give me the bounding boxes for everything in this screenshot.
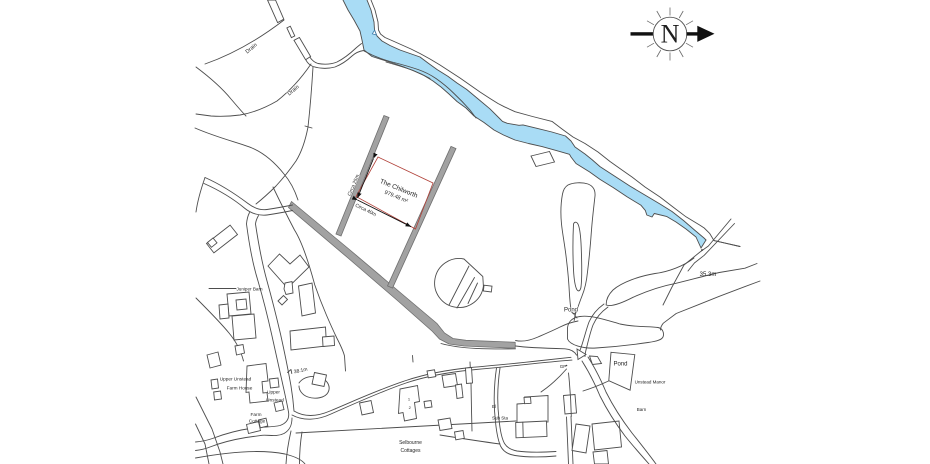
svg-text:Upper: Upper xyxy=(267,390,280,395)
svg-text:N: N xyxy=(661,20,680,49)
svg-text:Sub Sta: Sub Sta xyxy=(492,416,509,421)
svg-text:Pond: Pond xyxy=(564,308,578,314)
svg-text:Cottages: Cottages xyxy=(400,448,421,454)
svg-text:Juniper Barn: Juniper Barn xyxy=(237,287,263,292)
svg-text:Farm House: Farm House xyxy=(227,386,253,391)
svg-text:Unstead Manor: Unstead Manor xyxy=(635,380,666,385)
svg-text:35.3m: 35.3m xyxy=(700,272,717,278)
svg-text:Barn: Barn xyxy=(637,407,647,412)
svg-text:Pond: Pond xyxy=(613,362,627,368)
svg-text:Selbourne: Selbourne xyxy=(399,440,422,446)
svg-text:Farm: Farm xyxy=(251,412,262,417)
svg-text:Unstead: Unstead xyxy=(266,398,284,403)
svg-text:GP: GP xyxy=(560,364,567,369)
svg-text:Upper Unstead: Upper Unstead xyxy=(220,377,252,382)
svg-text:El: El xyxy=(492,404,496,409)
svg-text:Cottage: Cottage xyxy=(249,419,266,424)
